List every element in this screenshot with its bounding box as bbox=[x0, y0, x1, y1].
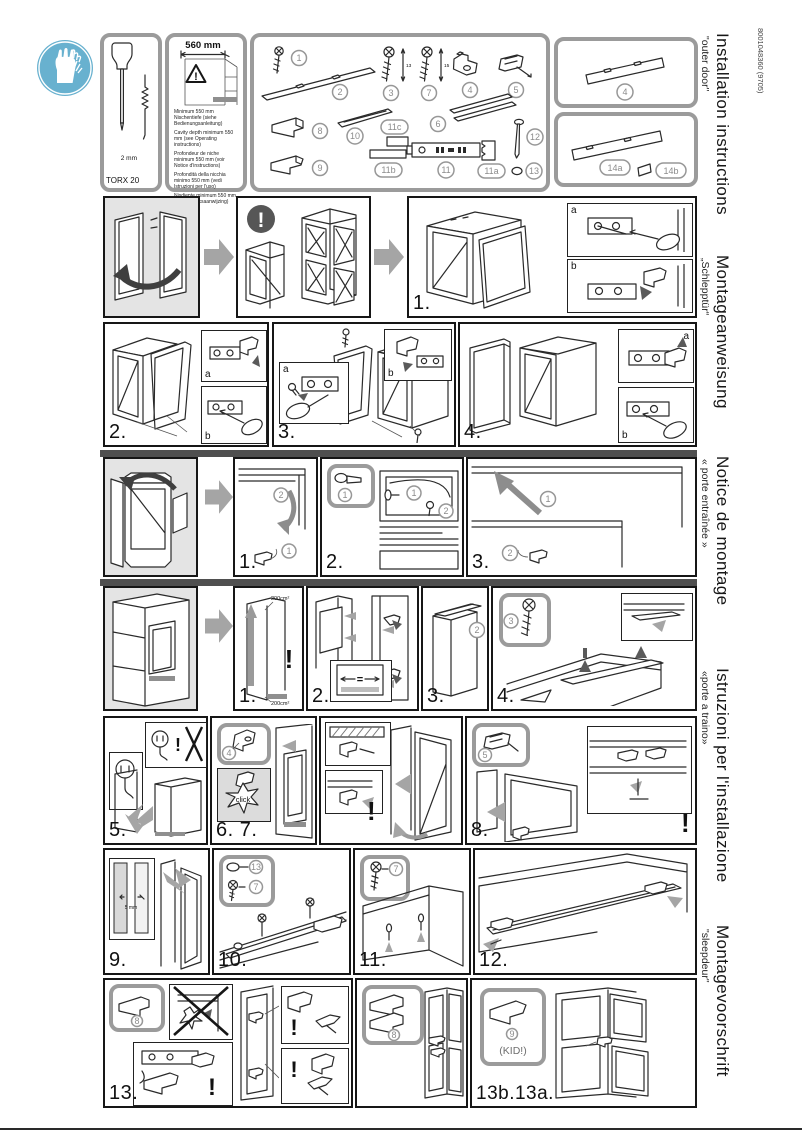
door-align-panel: ! bbox=[319, 716, 463, 845]
title-fr: Notice de montage bbox=[712, 456, 732, 606]
subtitle-it: «porte a traino» bbox=[699, 671, 711, 745]
seq-2-label: 2 bbox=[503, 546, 518, 561]
svg-text:1: 1 bbox=[286, 546, 291, 556]
part-14b bbox=[638, 164, 651, 176]
step-number-12: 12. bbox=[479, 949, 508, 972]
bottom-screw bbox=[415, 429, 421, 443]
small-screw bbox=[289, 384, 300, 396]
flow-arrow-3 bbox=[205, 478, 233, 516]
part-label-11a: 11a bbox=[478, 164, 505, 178]
svg-text:1: 1 bbox=[545, 494, 550, 504]
part-rail-6 bbox=[450, 94, 516, 121]
part-label-11: 11 bbox=[438, 162, 454, 178]
subtitle-en: "outer door" bbox=[699, 36, 711, 91]
svg-text:13: 13 bbox=[251, 862, 261, 872]
svg-text:7: 7 bbox=[393, 864, 398, 874]
svg-text:5: 5 bbox=[482, 750, 487, 760]
screw-label: 3 bbox=[504, 614, 518, 628]
part-label-8: 8 bbox=[313, 124, 328, 139]
appliance-types-panel: ! bbox=[236, 196, 371, 318]
part-label-11c: 11c bbox=[381, 120, 408, 134]
cabinet-step-3-panel: 2 3. bbox=[421, 586, 489, 711]
step-1-panel: a b 1. bbox=[407, 196, 697, 318]
document-number: 8001048360 (9705) bbox=[756, 28, 765, 93]
subtitle-nl: "sleepdeur" bbox=[699, 929, 711, 983]
part-11c bbox=[387, 137, 408, 146]
niche-note-en: Cavity depth minimum 550 mm (see Operati… bbox=[174, 130, 240, 148]
step-13-handles-panel: 8 bbox=[355, 978, 468, 1108]
cabinet-step-4-panel: 3 4. bbox=[491, 586, 697, 711]
step1-inset-a: a bbox=[567, 203, 693, 257]
top-door-step-number-3: 3. bbox=[472, 551, 490, 574]
step-number-9: 9. bbox=[109, 949, 127, 972]
svg-text:8: 8 bbox=[317, 126, 322, 136]
warning-exclamation-8: ! bbox=[681, 808, 690, 839]
step-number-6-7: 6. 7. bbox=[216, 819, 257, 842]
part-11b bbox=[370, 150, 406, 158]
niche-width-label: 560 mm bbox=[185, 40, 220, 51]
svg-text:8: 8 bbox=[134, 1016, 139, 1026]
svg-text:3: 3 bbox=[508, 616, 513, 626]
screw-label: 7 bbox=[390, 863, 403, 876]
niche-note-fr: Profondeur de niche minimum 550 mm (voir… bbox=[174, 151, 240, 169]
step2-inset-b: b bbox=[201, 386, 267, 444]
cabinet-step-number-4: 4. bbox=[497, 685, 515, 708]
svg-text:7: 7 bbox=[426, 88, 431, 98]
svg-text:3: 3 bbox=[388, 88, 393, 98]
cabinet-step-1-panel: 200cm² ! 200cm² 1. bbox=[233, 586, 304, 711]
top-door-step-number-2: 2. bbox=[326, 551, 344, 574]
subtitle-de: „Schlepptür“ bbox=[699, 258, 711, 315]
parts-overview-panel: 1 2 13 3 15 7 4 5 6 8 bbox=[250, 33, 550, 192]
part-label-9: 9 bbox=[313, 161, 328, 176]
svg-text:5: 5 bbox=[513, 85, 518, 95]
step-number-13: 13. bbox=[109, 1082, 138, 1105]
handles8-inset: 8 bbox=[362, 985, 424, 1045]
svg-text:13: 13 bbox=[529, 166, 539, 176]
top-door-step-number-1: 1. bbox=[239, 551, 257, 574]
ceiling-strip-inset bbox=[325, 722, 391, 766]
niche-panel: 560 mm ! Minimum 550 mm Nischentiefe (si… bbox=[165, 33, 247, 192]
part-label-14b: 14b bbox=[656, 163, 686, 178]
svg-text:11: 11 bbox=[441, 165, 450, 175]
warning-triangle-icon: ! bbox=[187, 65, 206, 83]
double-door-fridge bbox=[302, 209, 356, 305]
svg-text:4: 4 bbox=[226, 748, 231, 758]
svg-text:11a: 11a bbox=[484, 166, 498, 176]
mid-latch bbox=[597, 1037, 612, 1047]
lever-pliers-inset-bottom: ! bbox=[281, 1048, 349, 1104]
latch-part bbox=[518, 550, 547, 563]
screw3-length: 13 bbox=[406, 63, 412, 69]
svg-text:1: 1 bbox=[296, 53, 301, 63]
step1-inset-b: b bbox=[567, 259, 693, 313]
part-label-10: 10 bbox=[347, 128, 363, 144]
cap-part bbox=[227, 863, 239, 871]
tools-panel: 2 mm TORX 20 bbox=[100, 33, 162, 192]
step-8-panel: 5 ! 8. bbox=[465, 716, 697, 845]
step-6-7-panel: 4 click 6. 7. bbox=[210, 716, 317, 845]
seq-2-label: 2 bbox=[274, 488, 288, 502]
step-number-4: 4. bbox=[464, 421, 482, 444]
svg-text:14b: 14b bbox=[663, 166, 678, 176]
handle9-label: 9 bbox=[507, 1029, 518, 1040]
handle8-inset: 8 bbox=[109, 984, 165, 1032]
strip-part bbox=[586, 58, 664, 84]
screw-inset: 3 bbox=[499, 593, 551, 647]
lever-warning-inset: ! bbox=[133, 1042, 233, 1106]
svg-text:7: 7 bbox=[253, 882, 258, 892]
flow-arrow-1 bbox=[204, 237, 234, 277]
gap-size-label: 5 mm bbox=[125, 905, 138, 911]
equal-label: = bbox=[357, 674, 363, 686]
part-label-7: 7 bbox=[422, 86, 437, 101]
hex-size-label: 2 mm bbox=[121, 155, 137, 162]
part-screw-3: 13 bbox=[382, 47, 412, 81]
part-11a bbox=[482, 141, 495, 160]
seq-1-label: 1 bbox=[339, 489, 352, 502]
rail-clip-inset bbox=[587, 726, 692, 814]
part-rail-2 bbox=[262, 68, 375, 100]
svg-text:4: 4 bbox=[467, 85, 472, 95]
step3-inset-a: a bbox=[279, 362, 349, 424]
page-bottom-rule bbox=[0, 1128, 802, 1130]
step-13b-13a-panel: 9 (KID!) 13b.13a. bbox=[470, 978, 697, 1108]
top-door-step-2-panel: 1 1 2 2. bbox=[320, 457, 464, 577]
seq-1-label: 1 bbox=[541, 492, 556, 507]
part-label-2: 2 bbox=[333, 85, 348, 100]
section-separator-1 bbox=[100, 450, 697, 457]
cabinet-step-number-1: 1. bbox=[239, 685, 257, 708]
screw-a bbox=[258, 914, 266, 936]
seq-2-label: 2 bbox=[439, 504, 453, 518]
fridge-types-illustration bbox=[238, 198, 369, 316]
niche-note-it: Profondità della nicchia minimo 550 mm (… bbox=[174, 172, 240, 190]
svg-text:11c: 11c bbox=[388, 122, 402, 132]
svg-text:1: 1 bbox=[342, 490, 347, 500]
step4-inset-a: a bbox=[618, 329, 694, 383]
equal-gap-inset: = bbox=[330, 660, 392, 702]
screw-label: 7 bbox=[250, 881, 263, 894]
click-label: click bbox=[236, 795, 251, 804]
flow-arrow-2 bbox=[374, 237, 404, 277]
parts-illustration: 1 2 13 3 15 7 4 5 6 8 bbox=[254, 37, 546, 188]
part-label-6: 6 bbox=[431, 117, 446, 132]
step-13-panel: 8 ! bbox=[103, 978, 353, 1108]
part-strip-11 bbox=[407, 143, 480, 157]
intro-door-swap-panel bbox=[103, 196, 200, 318]
step-11-panel: 7 11. bbox=[353, 848, 471, 975]
niche-note-de: Minimum 550 mm Nischentiefe (siehe Bedie… bbox=[174, 109, 240, 127]
title-en: Installation instructions bbox=[712, 33, 732, 215]
part-screw-7: 15 bbox=[420, 47, 450, 81]
part-label-12: 12 bbox=[527, 129, 543, 145]
niche-illustration: 560 mm ! bbox=[169, 37, 243, 107]
section-separator-2 bbox=[100, 579, 697, 586]
cap-label: 13 bbox=[250, 861, 263, 874]
rail-corner-inset bbox=[621, 593, 693, 641]
svg-text:4: 4 bbox=[622, 87, 627, 97]
vent-bottom-label: 200cm² bbox=[271, 701, 290, 707]
screw-glyph bbox=[427, 502, 434, 516]
door-swap-illustration bbox=[105, 198, 198, 316]
bracket-inset: 4 bbox=[217, 723, 271, 765]
torx-label: TORX 20 bbox=[106, 176, 140, 185]
hex-key-illustration bbox=[142, 75, 148, 139]
step-number-2: 2. bbox=[109, 421, 127, 444]
lever-pliers-inset-top: ! bbox=[281, 986, 349, 1044]
kid-label: (KID!) bbox=[499, 1045, 526, 1057]
glove-front bbox=[56, 48, 76, 83]
handle-part bbox=[119, 997, 149, 1016]
wear-gloves-icon bbox=[35, 38, 95, 98]
pin-part bbox=[335, 474, 361, 484]
part-label-3: 3 bbox=[384, 86, 399, 101]
pin-b bbox=[419, 914, 424, 930]
hinge-plate bbox=[314, 916, 342, 932]
title-it: Istruzioni per l'installazione bbox=[712, 668, 732, 883]
instruction-sheet: 2 mm TORX 20 560 mm ! Minimum 550 mm Nis… bbox=[0, 0, 802, 1134]
screw-b bbox=[306, 898, 314, 918]
exclamation: ! bbox=[285, 644, 294, 674]
svg-text:2: 2 bbox=[507, 548, 512, 558]
svg-text:6: 6 bbox=[435, 119, 440, 129]
svg-text:!: ! bbox=[194, 71, 198, 83]
part-handle-9 bbox=[271, 156, 303, 174]
part-label-1: 1 bbox=[292, 51, 307, 66]
svg-text:2: 2 bbox=[474, 625, 479, 635]
part-cap-13 bbox=[512, 167, 522, 174]
handles-label: 8 bbox=[389, 1030, 400, 1041]
pin-a bbox=[387, 924, 392, 940]
part-label-4: 4 bbox=[463, 83, 478, 98]
part-pin-12 bbox=[515, 119, 524, 158]
forbidden-inset bbox=[169, 984, 233, 1040]
step4-inset-b: b bbox=[618, 387, 694, 443]
svg-text:1: 1 bbox=[411, 488, 416, 498]
svg-text:!: ! bbox=[290, 1057, 297, 1082]
step-10-panel: 13 7 10. bbox=[212, 848, 351, 975]
step-3-panel: a b 3. bbox=[272, 322, 456, 447]
handle-part-9 bbox=[490, 1001, 526, 1024]
accessory-panel-14: 14a 14b bbox=[554, 112, 698, 187]
svg-text:2: 2 bbox=[443, 506, 448, 516]
step-number-11: 11. bbox=[359, 949, 387, 972]
screw-part bbox=[522, 599, 536, 636]
floating-screw bbox=[343, 329, 350, 347]
step-number-8: 8. bbox=[471, 819, 489, 842]
accessory-panel-4: 4 bbox=[554, 37, 698, 108]
screw7-length: 15 bbox=[444, 63, 450, 69]
vent-top-label: 200cm² bbox=[271, 596, 290, 602]
clamp-label: 5 bbox=[479, 749, 492, 762]
part-clamp-5 bbox=[499, 55, 531, 77]
step-number-13b-13a: 13b.13a. bbox=[476, 1083, 554, 1105]
step-12-panel: 12. bbox=[473, 848, 697, 975]
cabinet-step-number-3: 3. bbox=[427, 685, 445, 708]
part-label-13: 13 bbox=[526, 163, 542, 179]
screwdriver-illustration: 2 mm TORX 20 bbox=[104, 37, 158, 188]
fridge-open-door-illustration bbox=[411, 200, 563, 314]
svg-text:!: ! bbox=[208, 1074, 216, 1101]
step-4-panel: a b 4. bbox=[458, 322, 697, 447]
svg-text:10: 10 bbox=[350, 131, 360, 141]
seq-1-label: 1 bbox=[407, 486, 421, 500]
no-plug-inset: ! bbox=[145, 722, 207, 768]
part-handle-8 bbox=[272, 118, 303, 137]
click-inset: click bbox=[217, 768, 271, 822]
flow-arrow-4 bbox=[205, 607, 233, 645]
svg-text:11b: 11b bbox=[381, 165, 395, 175]
part-bracket-4 bbox=[454, 52, 478, 75]
step-9-panel: 5 mm 9. bbox=[103, 848, 210, 975]
step-number-1: 1. bbox=[413, 292, 431, 315]
step2-part-inset: 1 bbox=[327, 464, 375, 508]
part-screw-1 bbox=[274, 47, 284, 73]
step-5-panel: ! 5. bbox=[103, 716, 208, 845]
latch-part bbox=[255, 549, 277, 565]
pin-glyph bbox=[385, 490, 399, 500]
seq-1-label: 1 bbox=[282, 544, 296, 558]
warning-exclamation: ! bbox=[367, 796, 376, 827]
handle-label: 8 bbox=[132, 1016, 143, 1027]
svg-text:!: ! bbox=[290, 1015, 297, 1040]
cabinet-step-2-panel: = 2. bbox=[306, 586, 419, 711]
intro-cabinet-panel bbox=[103, 586, 198, 711]
part-label-5: 5 bbox=[509, 83, 524, 98]
step-number-5: 5. bbox=[109, 819, 127, 842]
svg-text:!: ! bbox=[175, 735, 181, 755]
top-door-step-3-panel: 1 2 3. bbox=[466, 457, 697, 577]
svg-text:2: 2 bbox=[337, 87, 342, 97]
svg-text:9: 9 bbox=[317, 163, 322, 173]
step2-inset-a: a bbox=[201, 330, 267, 382]
top-door-step-1-panel: 2 1 1. bbox=[233, 457, 318, 577]
cabinet-step-number-2: 2. bbox=[312, 685, 330, 708]
title-de: Montageanweisung bbox=[712, 255, 732, 409]
svg-text:9: 9 bbox=[509, 1029, 514, 1039]
strip-part-14a bbox=[572, 131, 662, 160]
niche-notes: Minimum 550 mm Nischentiefe (siehe Bedie… bbox=[174, 109, 240, 208]
svg-text:12: 12 bbox=[530, 132, 540, 142]
part-label-14a: 14a bbox=[600, 160, 630, 175]
part-label-4b: 4 bbox=[617, 84, 633, 100]
part-label-11b: 11b bbox=[375, 163, 402, 177]
single-door-fridge bbox=[246, 242, 284, 308]
intro-top-door-panel bbox=[103, 457, 198, 577]
subtitle-fr: « porte entraînée » bbox=[699, 459, 711, 548]
lever-part bbox=[144, 1073, 178, 1094]
gap-inset: 5 mm bbox=[109, 858, 155, 940]
svg-text:8: 8 bbox=[391, 1030, 396, 1040]
step-2-panel: a b 2. bbox=[103, 322, 269, 447]
svg-text:2: 2 bbox=[278, 490, 283, 500]
svg-text:14a: 14a bbox=[607, 163, 622, 173]
title-nl: Montagevoorschrift bbox=[712, 925, 732, 1077]
step-number-3: 3. bbox=[278, 421, 296, 444]
clamp-inset: 5 bbox=[472, 723, 530, 767]
step-number-10: 10. bbox=[218, 949, 247, 972]
step3-inset-b: b bbox=[384, 329, 452, 381]
handle9-kid-inset: 9 (KID!) bbox=[480, 988, 546, 1066]
